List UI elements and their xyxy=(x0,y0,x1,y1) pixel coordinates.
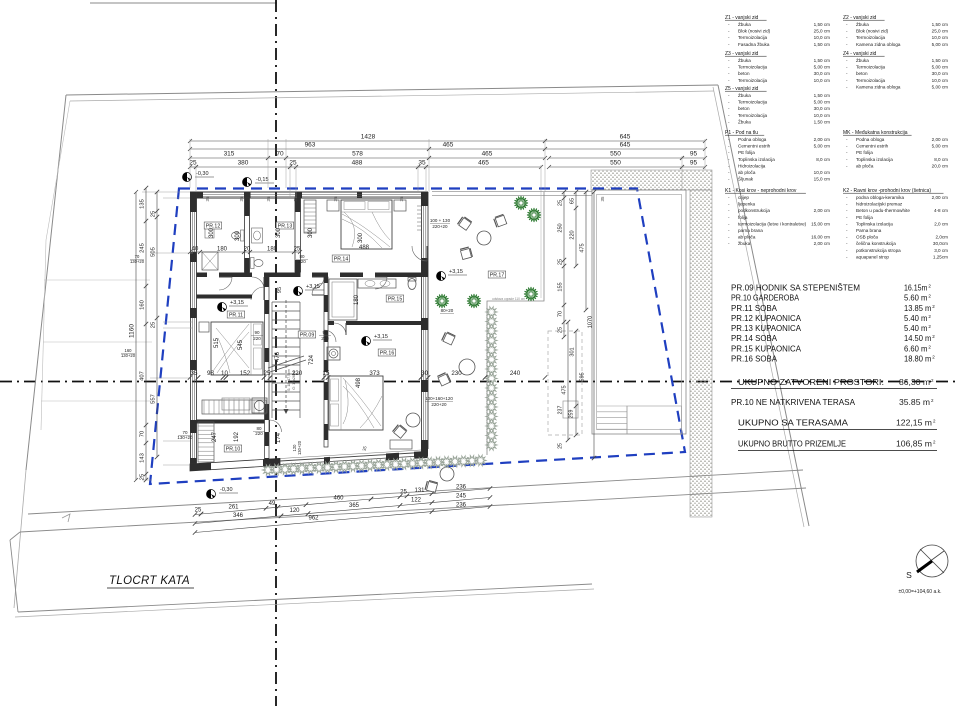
svg-text:4-8 cm: 4-8 cm xyxy=(934,208,948,213)
svg-text:550: 550 xyxy=(610,160,621,167)
svg-text:Šljunak: Šljunak xyxy=(738,176,754,182)
svg-text:ab ploča: ab ploča xyxy=(738,170,756,175)
svg-text:Termoizolacija: Termoizolacija xyxy=(856,78,886,83)
svg-text:Parna brana: Parna brana xyxy=(856,228,882,233)
svg-text:645: 645 xyxy=(620,134,631,141)
svg-text:25: 25 xyxy=(264,370,271,377)
svg-text:Žbuka: Žbuka xyxy=(856,56,869,63)
svg-text:962: 962 xyxy=(308,516,319,522)
svg-text:315: 315 xyxy=(224,151,235,158)
svg-text:2,00 cm: 2,00 cm xyxy=(932,195,949,200)
svg-text:963: 963 xyxy=(305,142,316,149)
svg-text:220: 220 xyxy=(292,370,303,377)
svg-text:25,0 cm: 25,0 cm xyxy=(814,29,831,34)
svg-text:8,0 cm: 8,0 cm xyxy=(934,157,948,162)
svg-text:346: 346 xyxy=(233,513,244,519)
svg-text:10,0 cm: 10,0 cm xyxy=(814,78,831,83)
svg-text:236: 236 xyxy=(456,503,467,509)
svg-text:300: 300 xyxy=(235,230,241,241)
svg-text:578: 578 xyxy=(352,151,363,158)
svg-text:1,50 cm: 1,50 cm xyxy=(932,22,949,27)
svg-text:Termoizolacija: Termoizolacija xyxy=(738,35,768,40)
svg-text:Žbuka: Žbuka xyxy=(738,20,751,27)
svg-text:parna brana: parna brana xyxy=(738,228,763,233)
svg-text:PR.10 NE NATKRIVENA TERASA: PR.10 NE NATKRIVENA TERASA xyxy=(731,398,856,407)
svg-text:termoizolacija (letve i kontra: termoizolacija (letve i kontraletve) xyxy=(738,221,807,226)
svg-text:Beton u padu-thermowhite: Beton u padu-thermowhite xyxy=(856,208,910,213)
svg-text:122: 122 xyxy=(411,498,422,504)
svg-text:10,0 cm: 10,0 cm xyxy=(932,35,949,40)
svg-text:beton: beton xyxy=(738,71,750,76)
svg-text:65: 65 xyxy=(570,198,576,204)
svg-text:2,0cm: 2,0cm xyxy=(935,235,948,240)
svg-text:1428: 1428 xyxy=(361,134,376,141)
svg-text:+3,15: +3,15 xyxy=(449,269,463,275)
svg-text:35: 35 xyxy=(266,196,271,202)
svg-text:ljepenka: ljepenka xyxy=(738,202,756,207)
svg-text:3,0 cm: 3,0 cm xyxy=(934,248,948,253)
svg-text:15: 15 xyxy=(323,370,330,377)
svg-text:1070: 1070 xyxy=(588,316,594,328)
svg-text:237: 237 xyxy=(558,406,564,415)
svg-text:35: 35 xyxy=(239,196,244,202)
svg-text:135: 135 xyxy=(140,199,146,209)
svg-text:152: 152 xyxy=(240,370,251,377)
svg-text:čelična konstrukcija: čelična konstrukcija xyxy=(856,241,896,246)
svg-text:5,00 cm: 5,00 cm xyxy=(814,100,831,105)
svg-text:6.60 m: 6.60 m xyxy=(904,344,928,353)
svg-text:14.50 m: 14.50 m xyxy=(904,334,932,343)
svg-text:122,15 m: 122,15 m xyxy=(896,419,932,428)
svg-text:120: 120 xyxy=(289,508,300,514)
svg-text:245: 245 xyxy=(456,494,467,500)
svg-text:300: 300 xyxy=(358,232,364,243)
svg-text:+3,15: +3,15 xyxy=(374,334,388,340)
svg-text:Termoizolacija: Termoizolacija xyxy=(856,35,886,40)
svg-text:-0,30: -0,30 xyxy=(196,171,209,177)
svg-text:30,0cm: 30,0cm xyxy=(933,241,948,246)
svg-text:10,0 cm: 10,0 cm xyxy=(814,35,831,40)
svg-text:1,50 cm: 1,50 cm xyxy=(814,42,831,47)
svg-text:2,00 cm: 2,00 cm xyxy=(814,241,831,246)
svg-text:240: 240 xyxy=(510,370,521,377)
svg-text:Termoizolacija: Termoizolacija xyxy=(738,100,768,105)
svg-text:301: 301 xyxy=(570,347,576,356)
svg-text:odstava ograde 110 cm: odstava ograde 110 cm xyxy=(492,297,525,301)
svg-text:Termoizolacija: Termoizolacija xyxy=(738,65,768,70)
svg-text:PR.10: PR.10 xyxy=(226,447,241,453)
svg-text:220: 220 xyxy=(253,336,261,341)
svg-text:475: 475 xyxy=(562,385,568,394)
svg-text:Cementni estrih: Cementni estrih xyxy=(856,144,889,149)
svg-text:25: 25 xyxy=(195,508,202,514)
svg-text:300: 300 xyxy=(276,227,282,238)
svg-text:5,00 cm: 5,00 cm xyxy=(932,42,949,47)
svg-text:UKUPNO BRUTTO PRIZEMLJE: UKUPNO BRUTTO PRIZEMLJE xyxy=(738,440,846,449)
svg-text:aquapanel strop: aquapanel strop xyxy=(856,254,889,259)
svg-text:5.40 m: 5.40 m xyxy=(904,314,928,323)
svg-text:25: 25 xyxy=(558,259,564,265)
svg-text:407: 407 xyxy=(140,371,146,381)
svg-text:PR.13 KUPAONICA: PR.13 KUPAONICA xyxy=(731,324,802,333)
svg-text:515: 515 xyxy=(214,337,220,348)
svg-text:Podna obloga: Podna obloga xyxy=(856,137,885,142)
svg-text:130+20: 130+20 xyxy=(130,259,145,264)
svg-text:86,30 m: 86,30 m xyxy=(899,378,930,387)
svg-text:25: 25 xyxy=(558,443,564,449)
svg-text:8,0 cm: 8,0 cm xyxy=(816,157,830,162)
svg-text:PR.11 SOBA: PR.11 SOBA xyxy=(731,304,778,313)
svg-text:PR.16: PR.16 xyxy=(380,351,395,357)
svg-text:25: 25 xyxy=(140,474,146,480)
svg-text:1,50 cm: 1,50 cm xyxy=(814,119,831,124)
svg-text:PR.17: PR.17 xyxy=(490,273,505,279)
svg-text:UKUPNO SA TERASAMA: UKUPNO SA TERASAMA xyxy=(738,419,849,428)
svg-text:Podna obloga: Podna obloga xyxy=(738,137,767,142)
svg-text:beton: beton xyxy=(856,71,868,76)
svg-text:95: 95 xyxy=(277,287,283,293)
svg-text:220: 220 xyxy=(570,230,576,239)
svg-text:25: 25 xyxy=(558,327,564,333)
svg-text:Žbuka: Žbuka xyxy=(738,117,751,124)
svg-text:90: 90 xyxy=(254,330,260,335)
svg-text:160: 160 xyxy=(140,300,146,310)
svg-text:180: 180 xyxy=(354,294,360,305)
svg-text:155: 155 xyxy=(558,282,564,291)
svg-text:5,00 cm: 5,00 cm xyxy=(814,65,831,70)
svg-text:25: 25 xyxy=(151,211,157,217)
svg-text:5,00 cm: 5,00 cm xyxy=(932,144,949,149)
svg-text:podkonstrukcija: podkonstrukcija xyxy=(738,208,770,213)
svg-text:25: 25 xyxy=(558,200,564,206)
svg-text:100 + 130: 100 + 130 xyxy=(430,218,451,223)
svg-text:300: 300 xyxy=(209,227,215,238)
svg-text:220: 220 xyxy=(255,431,263,436)
svg-text:Toplinska izolacija: Toplinska izolacija xyxy=(856,221,893,226)
svg-text:Termoizolacija: Termoizolacija xyxy=(738,113,768,118)
svg-text:95: 95 xyxy=(690,160,698,167)
svg-text:545: 545 xyxy=(238,339,244,350)
svg-text:488: 488 xyxy=(359,245,370,251)
svg-text:49: 49 xyxy=(269,501,276,507)
svg-text:beton: beton xyxy=(738,106,750,111)
svg-text:Blok (nosivi zid): Blok (nosivi zid) xyxy=(856,29,889,34)
svg-text:PR.11: PR.11 xyxy=(229,313,243,319)
svg-text:hidroizolacijski premaz: hidroizolacijski premaz xyxy=(856,202,903,207)
svg-text:16,00 cm: 16,00 cm xyxy=(811,235,830,240)
svg-text:Žbuka: Žbuka xyxy=(738,56,751,63)
svg-text:PR.09: PR.09 xyxy=(300,333,315,339)
svg-text:80+20: 80+20 xyxy=(441,308,454,313)
svg-text:505: 505 xyxy=(151,247,157,257)
svg-text:S: 18x17,5cm: S: 18x17,5cm xyxy=(287,369,291,391)
svg-text:5,00 cm: 5,00 cm xyxy=(932,65,949,70)
svg-text:PR.15 KUPAONICA: PR.15 KUPAONICA xyxy=(731,344,802,353)
svg-text:70: 70 xyxy=(140,431,146,437)
svg-text:Kamena zidna obloga: Kamena zidna obloga xyxy=(856,84,901,89)
svg-text:220+20: 220+20 xyxy=(431,402,447,407)
svg-text:465: 465 xyxy=(443,142,454,149)
svg-text:247: 247 xyxy=(212,431,218,442)
svg-text:70: 70 xyxy=(276,151,284,158)
svg-text:130+20: 130+20 xyxy=(177,435,193,440)
svg-text:250: 250 xyxy=(558,223,564,232)
svg-text:100+160+120: 100+160+120 xyxy=(425,396,453,401)
svg-text:35.85 m: 35.85 m xyxy=(899,398,930,407)
svg-text:PE folija: PE folija xyxy=(738,150,755,155)
svg-text:ab ploča: ab ploča xyxy=(738,235,756,240)
svg-text:220+20: 220+20 xyxy=(432,224,448,229)
svg-text:+3,15: +3,15 xyxy=(230,300,244,306)
svg-text:236: 236 xyxy=(456,485,467,491)
svg-text:PR.14 SOBA: PR.14 SOBA xyxy=(731,334,778,343)
svg-text:+3,15: +3,15 xyxy=(306,284,320,290)
svg-text:30,0 cm: 30,0 cm xyxy=(814,106,831,111)
svg-text:Cementni estrih: Cementni estrih xyxy=(738,144,771,149)
svg-text:15,00 cm: 15,00 cm xyxy=(811,221,830,226)
svg-text:Termoizolacija: Termoizolacija xyxy=(738,78,768,83)
svg-text:žbuka: žbuka xyxy=(738,241,751,246)
svg-text:25: 25 xyxy=(151,322,157,328)
svg-text:70: 70 xyxy=(558,311,564,317)
svg-text:13.85 m: 13.85 m xyxy=(904,304,932,313)
svg-text:-0,30: -0,30 xyxy=(220,487,233,493)
svg-text:Žbuka: Žbuka xyxy=(856,20,869,27)
svg-text:2,00 cm: 2,00 cm xyxy=(814,137,831,142)
svg-text:475: 475 xyxy=(580,243,586,252)
svg-text:potkonstrukcija stropa: potkonstrukcija stropa xyxy=(856,248,901,253)
svg-text:25: 25 xyxy=(294,247,301,253)
svg-text:S: S xyxy=(906,570,912,580)
svg-text:645: 645 xyxy=(620,142,631,149)
svg-text:25,0 cm: 25,0 cm xyxy=(932,29,949,34)
svg-text:PR.15: PR.15 xyxy=(388,297,403,303)
svg-text:35: 35 xyxy=(205,196,210,202)
svg-text:16.15m: 16.15m xyxy=(904,284,928,293)
svg-text:130+20: 130+20 xyxy=(121,353,136,358)
svg-text:35: 35 xyxy=(333,196,338,202)
svg-text:131: 131 xyxy=(414,488,425,494)
svg-text:498: 498 xyxy=(356,377,362,388)
svg-text:18.80 m: 18.80 m xyxy=(904,355,932,364)
svg-text:Žbuka: Žbuka xyxy=(738,91,751,98)
svg-text:1,50 cm: 1,50 cm xyxy=(814,58,831,63)
svg-text:488: 488 xyxy=(352,160,363,167)
svg-text:10,0 cm: 10,0 cm xyxy=(814,113,831,118)
svg-text:10,0 cm: 10,0 cm xyxy=(932,78,949,83)
svg-text:380: 380 xyxy=(238,160,249,167)
svg-text:Toplinska izolacija: Toplinska izolacija xyxy=(856,157,893,162)
svg-text:2,00 cm: 2,00 cm xyxy=(932,137,949,142)
svg-text:5.40 m: 5.40 m xyxy=(904,324,928,333)
svg-text:PR.12 KUPAONICA: PR.12 KUPAONICA xyxy=(731,314,802,323)
svg-text:557: 557 xyxy=(151,394,157,404)
svg-text:PR.16 SOBA: PR.16 SOBA xyxy=(731,355,778,364)
svg-text:1,50 cm: 1,50 cm xyxy=(814,93,831,98)
svg-text:365: 365 xyxy=(349,503,360,509)
svg-text:ab ploča: ab ploča xyxy=(856,163,874,168)
svg-text:230: 230 xyxy=(451,370,462,377)
svg-text:OSB ploča: OSB ploča xyxy=(856,235,878,240)
svg-text:UKUPNO ZATVORENI PROSTORI:: UKUPNO ZATVORENI PROSTORI: xyxy=(738,378,884,387)
svg-text:180: 180 xyxy=(267,247,278,253)
svg-text:35: 35 xyxy=(399,196,404,202)
svg-text:Fasadna žbuka: Fasadna žbuka xyxy=(738,42,770,47)
svg-text:PR.10 GARDEROBA: PR.10 GARDEROBA xyxy=(731,294,800,303)
svg-text:-0,15: -0,15 xyxy=(256,177,269,183)
svg-text:465: 465 xyxy=(478,160,489,167)
svg-text:10,0 cm: 10,0 cm xyxy=(814,170,831,175)
svg-text:25: 25 xyxy=(400,490,407,496)
svg-text:30,0 cm: 30,0 cm xyxy=(814,71,831,76)
svg-text:5,00 cm: 5,00 cm xyxy=(932,84,949,89)
svg-text:300: 300 xyxy=(308,227,314,238)
svg-text:595: 595 xyxy=(580,372,586,381)
svg-text:Termoizolacija: Termoizolacija xyxy=(856,65,886,70)
svg-text:95: 95 xyxy=(690,151,698,158)
svg-text:15,0 cm: 15,0 cm xyxy=(814,177,831,182)
svg-text:1,50 cm: 1,50 cm xyxy=(932,58,949,63)
svg-text:5.60 m: 5.60 m xyxy=(904,294,928,303)
svg-text:35: 35 xyxy=(600,196,605,202)
svg-text:PR.14: PR.14 xyxy=(334,257,349,263)
svg-text:143: 143 xyxy=(140,453,146,463)
svg-text:crijep: crijep xyxy=(738,195,749,200)
svg-text:174: 174 xyxy=(276,432,282,443)
svg-text:Hidroizolacija: Hidroizolacija xyxy=(738,163,766,168)
svg-text:folija: folija xyxy=(738,215,748,220)
svg-text:1,25cm: 1,25cm xyxy=(933,254,948,259)
svg-text:180: 180 xyxy=(217,247,228,253)
svg-text:220: 220 xyxy=(321,336,329,341)
svg-text:476: 476 xyxy=(275,351,281,362)
svg-text:20: 20 xyxy=(244,247,251,253)
svg-text:Toplinska izolacija: Toplinska izolacija xyxy=(738,157,775,162)
svg-text:106,85 m: 106,85 m xyxy=(896,440,932,449)
svg-text:2,0 cm: 2,0 cm xyxy=(934,221,948,226)
svg-text:192: 192 xyxy=(234,431,240,442)
svg-text:261: 261 xyxy=(228,505,239,511)
svg-text:Blok (nosivi zid): Blok (nosivi zid) xyxy=(738,29,771,34)
svg-text:724: 724 xyxy=(309,354,315,365)
svg-text:1160: 1160 xyxy=(129,324,136,338)
svg-text:35: 35 xyxy=(418,160,426,167)
svg-text:PE folija: PE folija xyxy=(856,215,873,220)
svg-text:5,00 cm: 5,00 cm xyxy=(814,144,831,149)
svg-text:220: 220 xyxy=(298,259,306,264)
svg-text:1,50 cm: 1,50 cm xyxy=(814,22,831,27)
svg-text:PR.09 HODNIK SA STEPENIŠTEM: PR.09 HODNIK SA STEPENIŠTEM xyxy=(731,284,860,293)
svg-text:±0,00=+104,60 a.k.: ±0,00=+104,60 a.k. xyxy=(898,589,941,595)
svg-text:2,00 cm: 2,00 cm xyxy=(814,208,831,213)
svg-text:465: 465 xyxy=(482,151,493,158)
svg-text:20,0 cm: 20,0 cm xyxy=(932,163,949,168)
svg-text:550: 550 xyxy=(610,151,621,158)
svg-text:259: 259 xyxy=(569,410,575,419)
svg-text:460: 460 xyxy=(333,495,344,501)
svg-text:245: 245 xyxy=(140,243,146,253)
svg-text:30,0 cm: 30,0 cm xyxy=(932,71,949,76)
svg-text:35: 35 xyxy=(293,196,298,202)
svg-text:90: 90 xyxy=(322,330,328,335)
svg-text:373: 373 xyxy=(369,370,380,377)
svg-text:98: 98 xyxy=(207,370,214,377)
svg-text:TLOCRT KATA: TLOCRT KATA xyxy=(109,573,190,587)
svg-text:130+20: 130+20 xyxy=(297,440,302,455)
svg-text:PE folija: PE folija xyxy=(856,150,873,155)
svg-text:40: 40 xyxy=(192,247,199,253)
svg-text:Kamena zidna obloga: Kamena zidna obloga xyxy=(856,42,901,47)
svg-text:podna obloga-keramika: podna obloga-keramika xyxy=(856,195,904,200)
